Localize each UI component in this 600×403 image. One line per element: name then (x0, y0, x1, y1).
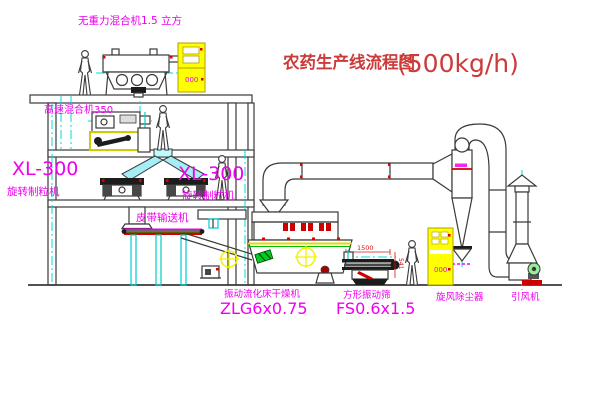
exhaust-stack (507, 175, 537, 263)
exhaust-duct-pipe (263, 163, 433, 205)
label-xl300-left: XL-300 (12, 158, 78, 180)
dimension-541: 541 (397, 258, 404, 270)
label-screen-model: FS0.6x1.5 (336, 299, 415, 318)
control-cabinet-right: 000 (428, 228, 453, 285)
worker-figure (406, 241, 419, 285)
high-speed-mixer-machine (90, 112, 150, 152)
induced-draft-fan-machine (509, 263, 542, 285)
label-granulator-center: 旋转制粒机 (182, 189, 235, 202)
label-xl300-center: XL-300 (178, 163, 244, 185)
cabinet-top-marks: 000 (185, 76, 198, 84)
label-high-speed-mixer: 高速混合机350 (44, 103, 113, 116)
square-vibrating-screen-machine: 1500 541 (342, 244, 404, 285)
label-cyclone: 旋风除尘器 (436, 291, 484, 303)
control-cabinet-top: 000 (178, 43, 205, 92)
label-fan: 引风机 (511, 291, 540, 303)
worker-figure (157, 106, 170, 150)
label-belt-conveyor: 皮带输送机 (136, 211, 189, 224)
worker-figure (79, 51, 92, 95)
dimension-1500: 1500 (357, 244, 374, 252)
label-granulator-left: 旋转制粒机 (7, 185, 60, 198)
label-gravity-mixer: 无重力混合机1.5 立方 (78, 14, 182, 27)
process-flow-diagram: 000 (0, 0, 600, 403)
rotary-granulator-left (100, 178, 144, 200)
cabinet-right-marks: 000 (434, 266, 447, 274)
diagram-title-capacity: (500kg/h) (397, 49, 519, 78)
diagram-canvas: 000 (0, 0, 600, 403)
fluid-bed-dryer-machine (248, 200, 352, 283)
diagram-title: 农药生产线流程图 (282, 52, 415, 72)
label-dryer-model: ZLG6x0.75 (220, 299, 308, 318)
